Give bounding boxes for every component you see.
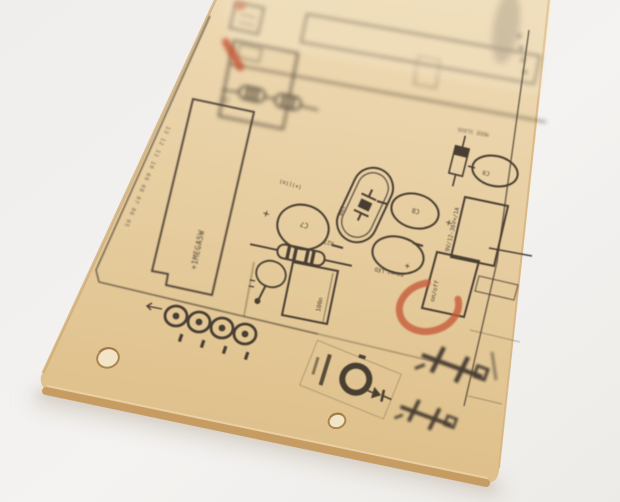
light-vignette xyxy=(0,0,620,502)
pcb-photo: +1MEGA5W 13 12 11 10 09 08 07 06 05 xyxy=(0,0,620,502)
